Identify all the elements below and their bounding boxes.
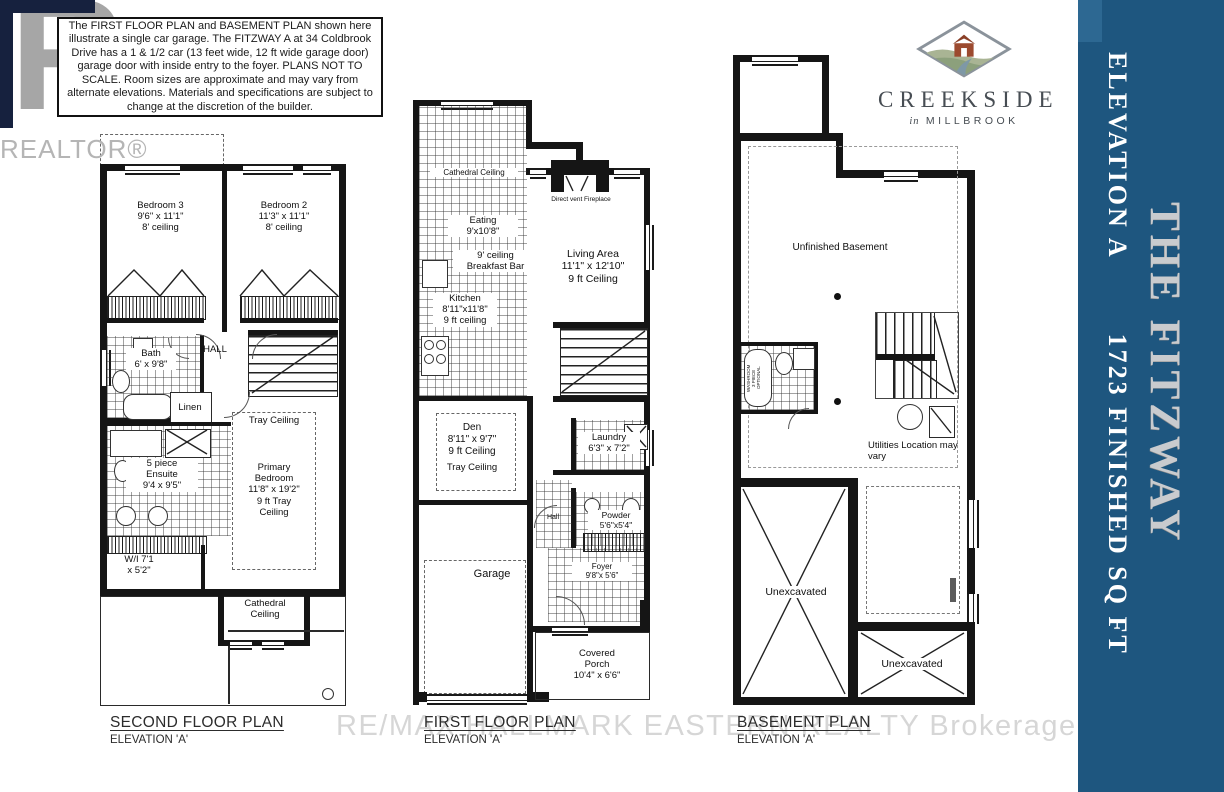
room-label-porch: Covered Porch 10'4" x 6'6" bbox=[564, 648, 630, 682]
room-label-living: Living Area 11'1" x 12'10" 9 ft Ceiling bbox=[543, 248, 643, 285]
wall bbox=[107, 318, 204, 323]
brand-name: CREEKSIDE bbox=[878, 87, 1050, 113]
sidebar-model-name: THE FITZWAY bbox=[1140, 202, 1189, 544]
window bbox=[303, 164, 331, 175]
wall bbox=[733, 133, 741, 705]
window bbox=[614, 168, 640, 179]
sidebar: ELEVATION A1723 FINISHED SQ FT THE FITZW… bbox=[1078, 0, 1224, 792]
creekside-diamond-icon bbox=[916, 20, 1012, 78]
sqft-label: 1723 FINISHED SQ FT bbox=[1103, 334, 1132, 656]
vanity bbox=[110, 430, 162, 457]
room-label-unfinished-basement: Unfinished Basement bbox=[783, 242, 897, 254]
bifold-door bbox=[284, 270, 338, 296]
room-label-eating: Eating 9'x10'8" bbox=[448, 215, 518, 237]
plan-elevation-text: ELEVATION 'A' bbox=[424, 734, 576, 746]
toilet bbox=[112, 370, 130, 393]
room-label-laundry: Laundry 6'3" x 7'2" bbox=[578, 432, 640, 454]
label-cathedral-ceiling: Cathedral Ceiling bbox=[222, 598, 308, 620]
window bbox=[967, 594, 979, 624]
wall bbox=[240, 318, 338, 323]
label-breakfast-bar: 9' ceiling Breakfast Bar bbox=[453, 250, 538, 272]
insulation-line bbox=[748, 146, 958, 468]
wall bbox=[740, 478, 855, 487]
room-label-kitchen: Kitchen 8'11"x11'8" 9 ft ceiling bbox=[433, 293, 497, 327]
room-label-bedroom2: Bedroom 2 11'3" x 11'1" 8' ceiling bbox=[238, 200, 330, 234]
wall bbox=[201, 545, 205, 589]
burner bbox=[436, 340, 446, 350]
plan-elevation-text: ELEVATION 'A' bbox=[737, 734, 871, 746]
room-label-den: Den 8'11" x 9'7" 9 ft Ceiling bbox=[432, 422, 512, 457]
label-cathedral-ceiling: Cathedral Ceiling bbox=[430, 168, 518, 177]
window bbox=[967, 500, 979, 548]
disclaimer-text: The FIRST FLOOR PLAN and BASEMENT PLAN s… bbox=[63, 18, 377, 116]
room-label-ensuite: 5 piece Ensuite 9'4 x 9'5" bbox=[126, 458, 198, 492]
brand-location: in MILLBROOK bbox=[878, 115, 1050, 127]
foyer-closet-shelving bbox=[583, 533, 645, 552]
window bbox=[752, 55, 798, 66]
roof-vent bbox=[322, 688, 334, 700]
corner-frame-left bbox=[0, 0, 13, 128]
closet-shelving bbox=[240, 296, 340, 320]
realtor-word-watermark: REALTOR® bbox=[0, 134, 148, 165]
wall bbox=[107, 422, 231, 426]
sink bbox=[148, 506, 168, 526]
plan-title-text: FIRST FLOOR PLAN bbox=[424, 714, 576, 732]
room-label-primary-bedroom: Primary Bedroom 11'8" x 19'2" 9 ft Tray … bbox=[232, 462, 316, 518]
burner bbox=[436, 354, 446, 364]
wall bbox=[339, 164, 346, 596]
bifold-door bbox=[108, 270, 160, 296]
shower bbox=[165, 429, 211, 458]
plan-title-second: SECOND FLOOR PLAN ELEVATION 'A' bbox=[110, 714, 284, 746]
bifold-door bbox=[160, 270, 204, 296]
room-label-hall: Hall bbox=[538, 514, 568, 522]
window bbox=[644, 225, 654, 270]
sink bbox=[116, 506, 136, 526]
wall bbox=[733, 133, 843, 141]
bathtub bbox=[123, 394, 173, 420]
plan-title-first: FIRST FLOOR PLAN ELEVATION 'A' bbox=[424, 714, 576, 746]
label-tray-ceiling: Tray Ceiling bbox=[432, 462, 512, 473]
fireplace bbox=[551, 160, 609, 174]
corner-frame-top bbox=[0, 0, 95, 13]
sidebar-elevation-text: ELEVATION A1723 FINISHED SQ FT bbox=[1102, 52, 1132, 656]
window bbox=[230, 640, 252, 650]
plan-title-basement: BASEMENT PLAN ELEVATION 'A' bbox=[737, 714, 871, 746]
window bbox=[125, 164, 180, 175]
room-label-walkin: W/I 7'1 x 5'2" bbox=[110, 554, 168, 576]
window bbox=[243, 164, 293, 175]
wall bbox=[527, 396, 533, 698]
stair-outline bbox=[875, 312, 959, 399]
brand-location-prefix: in bbox=[909, 116, 919, 127]
fireplace-line bbox=[566, 176, 573, 191]
disclaimer-box: The FIRST FLOOR PLAN and BASEMENT PLAN s… bbox=[57, 17, 383, 117]
label-utilities-note: Utilities Location may vary bbox=[868, 440, 964, 462]
support-post bbox=[834, 398, 841, 405]
closet-shelving bbox=[107, 536, 207, 554]
label-fireplace: Direct vent Fireplace bbox=[548, 196, 614, 204]
plan-title-text: SECOND FLOOR PLAN bbox=[110, 714, 284, 732]
bifold-door bbox=[240, 270, 284, 296]
hot-water-tank bbox=[897, 404, 923, 430]
staircase bbox=[560, 328, 648, 396]
room-label-foyer: Foyer 9'8"x 5'6" bbox=[572, 562, 632, 581]
label-tray-ceiling: Tray Ceiling bbox=[236, 415, 312, 426]
wall bbox=[553, 396, 650, 402]
plan-elevation-text: ELEVATION 'A' bbox=[110, 734, 284, 746]
label-washroom-roughin: WASHROOM 3 PIECE OPTIONAL bbox=[746, 352, 761, 404]
toilet bbox=[775, 352, 793, 375]
support-post bbox=[834, 293, 841, 300]
wall bbox=[553, 470, 650, 475]
wall bbox=[733, 55, 740, 140]
plan-title-text: BASEMENT PLAN bbox=[737, 714, 871, 732]
sink bbox=[793, 348, 815, 370]
floor-plan-sheet: R REALTOR® The FIRST FLOOR PLAN and BASE… bbox=[0, 0, 1224, 792]
closet-shelving bbox=[107, 296, 206, 320]
elevation-label: ELEVATION A bbox=[1103, 52, 1132, 260]
wall bbox=[419, 396, 531, 401]
wall-bedroom-divider bbox=[222, 164, 227, 332]
wall bbox=[733, 697, 975, 705]
room-label-garage: Garage bbox=[462, 568, 522, 581]
window bbox=[530, 168, 546, 179]
room-label-unexcavated-left: Unexcavated bbox=[758, 586, 834, 598]
wall bbox=[413, 692, 427, 702]
roof-line bbox=[228, 646, 230, 704]
room-label-bedroom3: Bedroom 3 9'6" x 11'1" 8' ceiling bbox=[118, 200, 203, 234]
room-label-hall: HALL bbox=[190, 344, 240, 355]
burner bbox=[424, 354, 434, 364]
fireplace-line bbox=[581, 176, 588, 191]
wall bbox=[848, 478, 858, 698]
burner bbox=[424, 340, 434, 350]
room-label-unexcavated-right: Unexcavated bbox=[874, 658, 950, 670]
creekside-logo: CREEKSIDE in MILLBROOK bbox=[878, 20, 1050, 127]
wall bbox=[858, 622, 975, 631]
window bbox=[262, 640, 284, 650]
furnace bbox=[929, 406, 955, 438]
brand-location-name: MILLBROOK bbox=[926, 115, 1019, 127]
room-label-powder: Powder 5'6"x5'4" bbox=[588, 510, 644, 530]
kitchen-sink bbox=[422, 260, 448, 288]
window-marker bbox=[950, 578, 956, 602]
roof-line bbox=[228, 630, 344, 632]
slab-outline bbox=[866, 486, 960, 614]
room-label-linen: Linen bbox=[170, 402, 210, 413]
wall bbox=[526, 142, 582, 149]
wall bbox=[419, 500, 531, 505]
fireplace-leg bbox=[551, 174, 564, 192]
wall bbox=[822, 55, 829, 140]
sidebar-corner-patch bbox=[1078, 0, 1102, 42]
porch-step bbox=[640, 600, 650, 628]
garage-door bbox=[427, 694, 527, 705]
fireplace-leg bbox=[596, 174, 609, 192]
room-label-bath: Bath 6' x 9'8" bbox=[126, 348, 176, 370]
